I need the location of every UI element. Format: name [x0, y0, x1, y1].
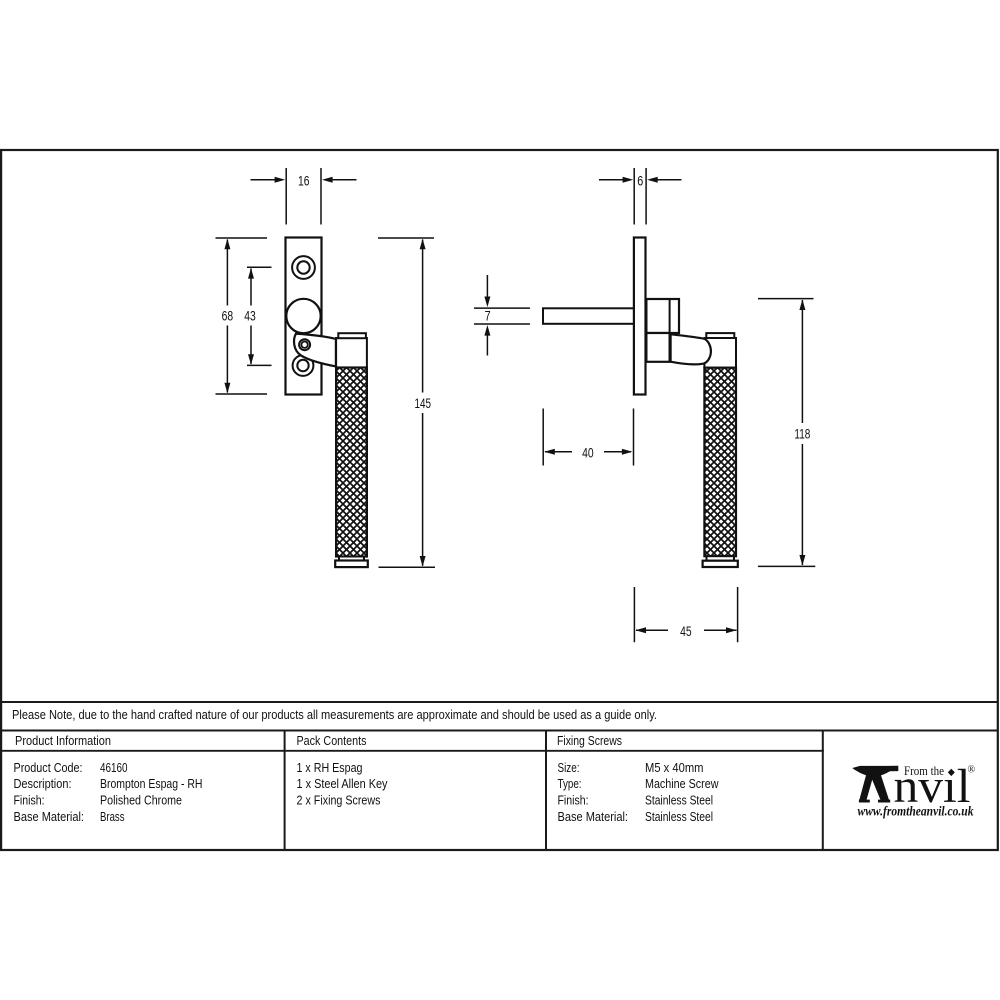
svg-text:Pack Contents: Pack Contents [297, 734, 367, 748]
svg-text:1 x RH Espag: 1 x RH Espag [297, 761, 363, 775]
svg-text:Fixing Screws: Fixing Screws [557, 734, 622, 748]
svg-text:Stainless Steel: Stainless Steel [645, 794, 713, 808]
svg-text:From the: From the [904, 763, 944, 778]
svg-text:2 x Fixing Screws: 2 x Fixing Screws [297, 794, 381, 808]
svg-text:Product Code:: Product Code: [14, 761, 83, 775]
svg-text:6: 6 [637, 172, 643, 188]
svg-text:45: 45 [680, 623, 692, 639]
svg-text:®: ® [968, 765, 976, 776]
svg-text:145: 145 [414, 395, 431, 411]
svg-text:Finish:: Finish: [558, 794, 589, 808]
svg-text:Base Material:: Base Material: [558, 810, 629, 824]
svg-text:Size:: Size: [558, 761, 580, 775]
svg-text:118: 118 [794, 426, 810, 442]
svg-text:www.fromtheanvil.co.uk: www.fromtheanvil.co.uk [858, 804, 974, 819]
svg-text:7: 7 [485, 308, 491, 324]
svg-text:68: 68 [222, 307, 234, 323]
svg-text:1 x Steel Allen Key: 1 x Steel Allen Key [297, 777, 389, 791]
svg-text:Description:: Description: [14, 777, 72, 791]
svg-text:Product Information: Product Information [15, 734, 111, 748]
svg-text:Base Material:: Base Material: [14, 810, 85, 824]
svg-text:40: 40 [582, 444, 594, 460]
svg-text:Polished Chrome: Polished Chrome [100, 794, 182, 808]
svg-text:43: 43 [244, 307, 256, 323]
svg-text:Brass: Brass [100, 810, 125, 824]
svg-text:Stainless Steel: Stainless Steel [645, 810, 713, 824]
svg-text:Type:: Type: [558, 777, 582, 791]
svg-text:Brompton Espag - RH: Brompton Espag - RH [100, 777, 203, 791]
svg-text:Machine Screw: Machine Screw [645, 777, 719, 791]
svg-text:16: 16 [298, 172, 310, 188]
svg-text:46160: 46160 [100, 761, 128, 775]
svg-text:M5 x 40mm: M5 x 40mm [645, 761, 704, 775]
svg-text:Finish:: Finish: [14, 794, 45, 808]
svg-text:Please Note, due to the hand c: Please Note, due to the hand crafted nat… [12, 708, 657, 722]
